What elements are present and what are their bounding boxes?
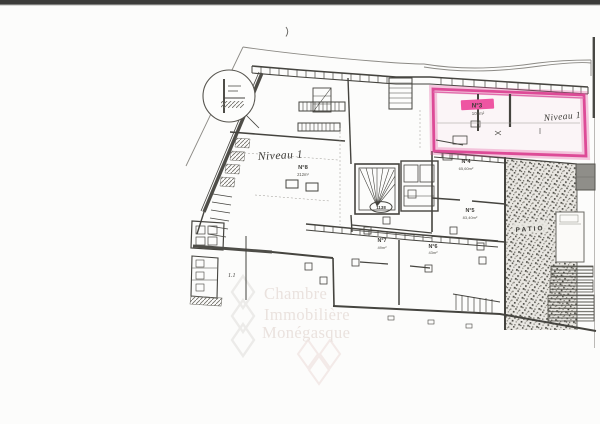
bottom-marks [388, 316, 472, 328]
highlighted-unit-3: N°3 109m² [433, 89, 586, 156]
niveau-note-left: Niveau 1 [257, 149, 304, 163]
watermark-diamond-lattice-faint [298, 340, 340, 384]
patio-area: PATIO [505, 157, 595, 330]
stair-core: 1138 [352, 161, 438, 238]
unit-label-n7: N°7 [377, 238, 386, 244]
floor-plan-drawing: Chambre Immobilière Monégasque [0, 0, 600, 424]
scan-top-bar [0, 0, 600, 5]
unit-label-n3: N°3 [472, 103, 483, 110]
unit-area-n4: 65,60m² [459, 166, 474, 171]
detail-ref-label: 1.1 [228, 273, 236, 279]
door-number-squares [305, 152, 486, 284]
unit-area-n6: 43m² [428, 250, 438, 255]
watermark-line-2: Immobilière [264, 305, 350, 324]
unit-area-n5: 83,40m² [463, 215, 478, 220]
spiral-stair-fan [360, 168, 395, 206]
unit-label-n8: N°8 [298, 165, 309, 171]
scan-right-edge-mark [593, 37, 595, 118]
watermark: Chambre Immobilière Monégasque [232, 276, 350, 384]
stair-rungs [208, 194, 232, 237]
unit-area-n3: 109m² [472, 111, 485, 116]
bubble-leader-line [246, 115, 259, 128]
watermark-line-1: Chambre [264, 284, 327, 303]
unit-label-n4: N°4 [461, 159, 470, 165]
watermark-line-3: Monégasque [262, 323, 350, 342]
watermark-diamond-logo [232, 276, 254, 356]
pen-mark [286, 27, 288, 37]
detail-bubble [203, 70, 259, 128]
unit-label-n5: N°5 [465, 208, 474, 214]
unit-area-n7: 49m² [377, 245, 387, 250]
unit-area-n8: 212m² [297, 172, 309, 177]
stair-ref-text: 1138 [376, 205, 386, 210]
scanned-floor-plan-page: Chambre Immobilière Monégasque [0, 0, 600, 424]
